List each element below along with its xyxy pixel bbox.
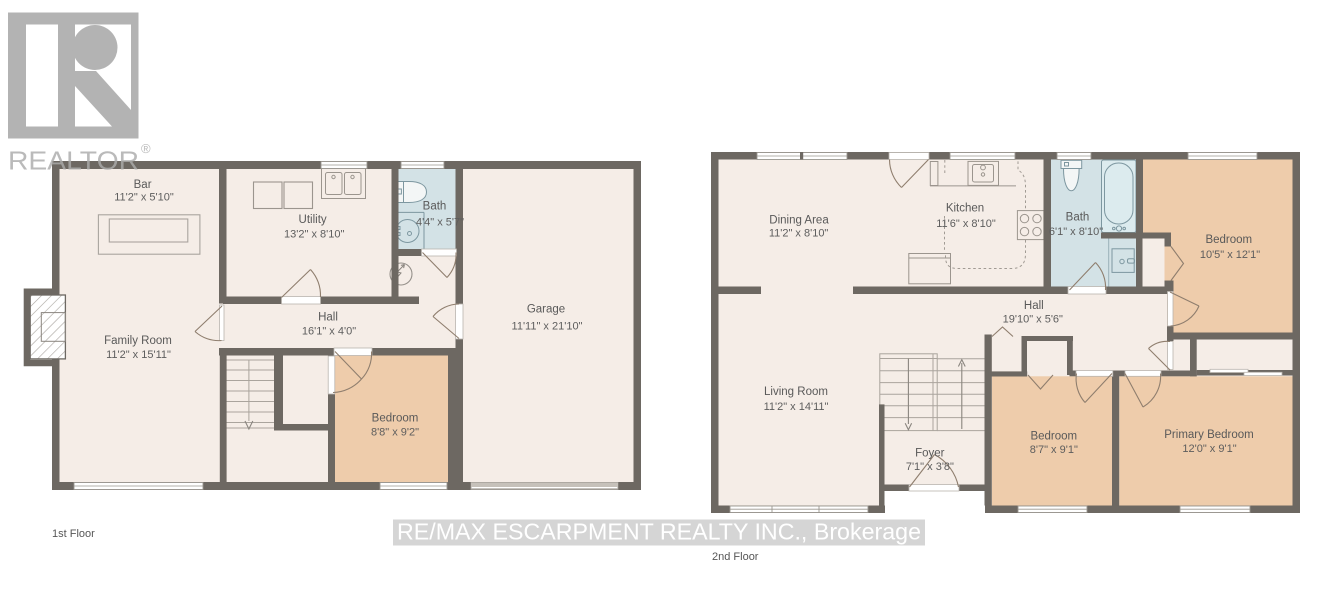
svg-text:REALTOR: REALTOR — [8, 146, 139, 176]
svg-text:11'11" x 21'10": 11'11" x 21'10" — [512, 321, 583, 333]
svg-text:Utility: Utility — [299, 214, 327, 226]
svg-text:Bedroom: Bedroom — [372, 413, 419, 425]
svg-text:19'10" x 5'6": 19'10" x 5'6" — [1003, 314, 1063, 326]
svg-text:Foyer: Foyer — [915, 447, 945, 459]
svg-text:11'2" x 8'10": 11'2" x 8'10" — [769, 227, 829, 239]
svg-text:4'4" x 5'7": 4'4" x 5'7" — [416, 217, 464, 229]
svg-text:Hall: Hall — [1024, 300, 1044, 312]
svg-text:®: ® — [141, 141, 151, 156]
svg-text:11'2" x 15'11": 11'2" x 15'11" — [106, 349, 171, 361]
svg-text:10'5" x 12'1": 10'5" x 12'1" — [1200, 249, 1260, 261]
svg-text:Bedroom: Bedroom — [1205, 234, 1252, 246]
svg-text:Kitchen: Kitchen — [946, 203, 984, 215]
svg-text:Family Room: Family Room — [104, 335, 172, 347]
svg-text:7'1" x 3'8": 7'1" x 3'8" — [906, 461, 954, 473]
svg-text:Dining Area: Dining Area — [769, 214, 829, 226]
svg-text:Bedroom: Bedroom — [1030, 431, 1077, 443]
svg-text:Bath: Bath — [1066, 212, 1090, 224]
svg-text:16'1" x 4'0": 16'1" x 4'0" — [302, 326, 356, 338]
svg-text:Bar: Bar — [134, 179, 152, 191]
svg-text:Bath: Bath — [423, 201, 447, 213]
svg-text:Garage: Garage — [527, 304, 565, 316]
svg-text:2nd Floor: 2nd Floor — [712, 551, 759, 563]
svg-text:Primary Bedroom: Primary Bedroom — [1164, 429, 1253, 441]
svg-text:13'2" x 8'10": 13'2" x 8'10" — [284, 228, 344, 240]
svg-text:8'7" x 9'1": 8'7" x 9'1" — [1030, 444, 1078, 456]
svg-text:RE/MAX ESCARPMENT REALTY INC.,: RE/MAX ESCARPMENT REALTY INC., Brokerage — [397, 519, 921, 545]
svg-text:11'2" x 5'10": 11'2" x 5'10" — [114, 192, 174, 204]
svg-text:11'6" x 8'10": 11'6" x 8'10" — [936, 218, 996, 230]
svg-text:12'0" x 9'1": 12'0" x 9'1" — [1182, 443, 1236, 455]
svg-text:8'8" x 9'2": 8'8" x 9'2" — [371, 427, 419, 439]
svg-text:11'2" x 14'11": 11'2" x 14'11" — [764, 401, 829, 413]
svg-text:6'1" x 8'10": 6'1" x 8'10" — [1049, 226, 1103, 238]
svg-text:Hall: Hall — [318, 312, 338, 324]
svg-text:Living Room: Living Room — [764, 386, 828, 398]
svg-text:1st Floor: 1st Floor — [52, 528, 95, 540]
